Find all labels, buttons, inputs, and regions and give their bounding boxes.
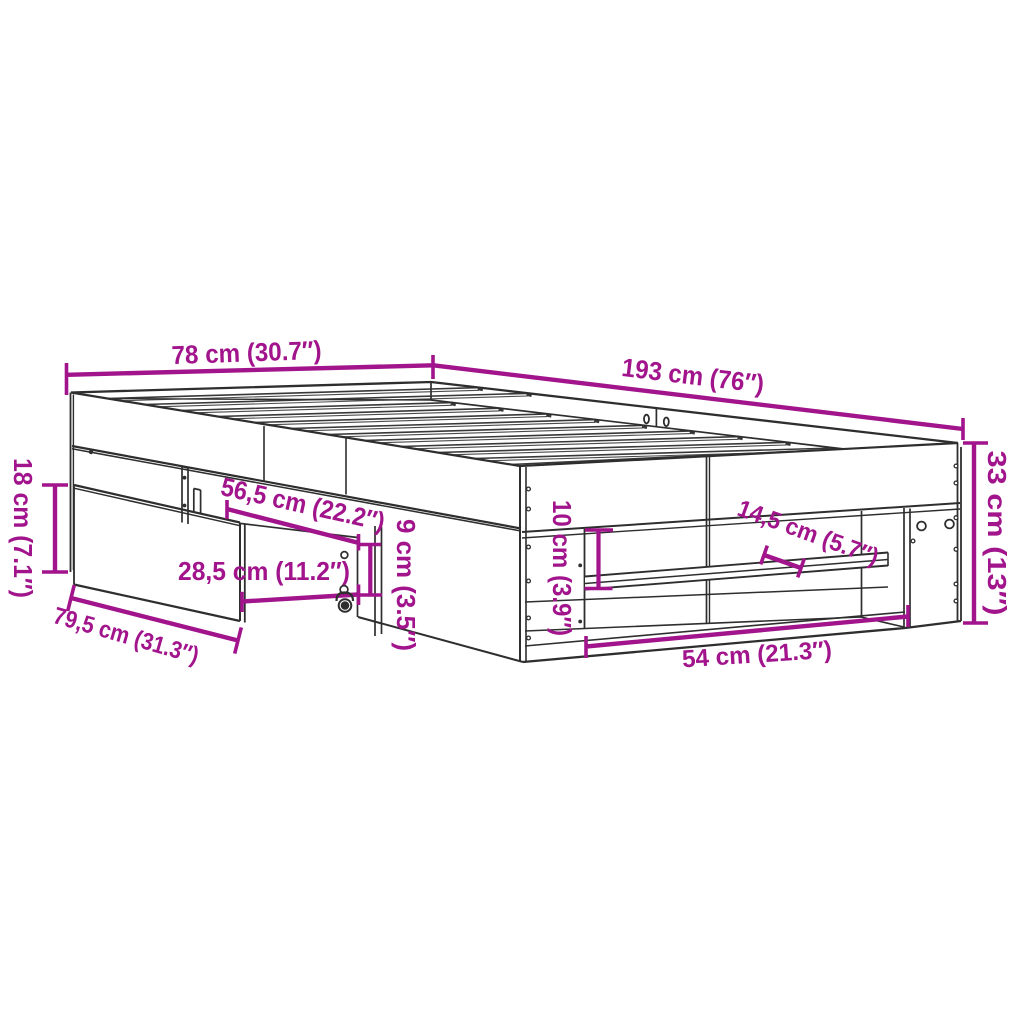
svg-text:28,5 cm (11.2″): 28,5 cm (11.2″) [178,556,350,586]
svg-text:33 cm (13″): 33 cm (13″) [982,451,1012,616]
svg-text:78 cm (30.7″): 78 cm (30.7″) [171,335,322,370]
svg-text:18 cm (7.1″): 18 cm (7.1″) [8,458,38,598]
svg-text:9 cm (3.5″): 9 cm (3.5″) [391,519,421,651]
svg-text:10 cm (3.9″): 10 cm (3.9″) [547,500,577,636]
